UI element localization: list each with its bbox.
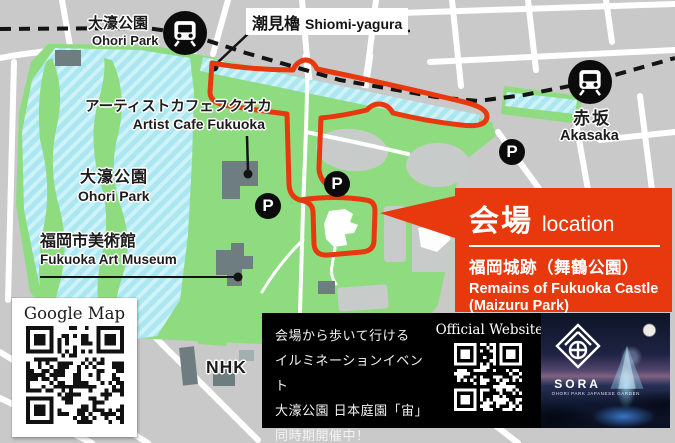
label-station-ohori-en: Ohori Park [92,34,158,48]
shiomi-yagura-ja: 潮見櫓 [252,10,300,34]
parking-icon: P [499,139,525,165]
light-beam [607,341,647,393]
label-station-akasaka-en: Akasaka [560,129,619,144]
sora-wordmark: SORA [552,377,604,391]
station-marker-ohori-koen [163,11,207,55]
venue-heading-ja: 会場 [469,196,533,240]
official-website-qr-code [436,343,541,416]
banner-line-4: 同時期開催中！ [275,424,436,443]
official-website-block: Official Website [436,313,541,428]
sora-crest-icon [555,323,601,369]
label-art-museum-ja: 福岡市美術館 [40,234,136,251]
google-map-qr-code [26,326,124,429]
parking-icon: P [324,171,350,197]
google-map-title: Google Map [12,304,137,323]
label-artist-cafe-ja: アーティストカフェフクオカ [85,100,272,115]
sora-subtitle: OHORI PARK JAPANESE GARDEN [552,391,604,396]
banner-line-1: 会場から歩いて行ける [275,324,436,349]
banner-line-2: イルミネーションイベント [275,349,436,399]
label-nhk: NHK [206,358,247,376]
label-ohori-park-en: Ohori Park [78,189,150,204]
venue-divider [469,245,660,247]
sora-logo: SORA OHORI PARK JAPANESE GARDEN [552,323,604,396]
train-icon [170,18,200,48]
shiomi-yagura-en: Shiomi-yagura [305,16,402,32]
parking-icon: P [255,193,281,219]
label-art-museum-en: Fukuoka Art Museum [40,253,177,267]
sora-event-photo: SORA OHORI PARK JAPANESE GARDEN [541,313,670,428]
venue-name-ja: 福岡城跡（舞鶴公園） [469,254,660,278]
parking-label: P [331,174,342,194]
event-banner-text: 会場から歩いて行ける イルミネーションイベント 大濠公園 日本庭園「宙」 同時期… [262,313,436,428]
banner-line-3: 大濠公園 日本庭園「宙」 [275,399,436,424]
official-website-label: Official Website [436,322,541,338]
small-green [196,330,230,346]
label-ohori-park-ja: 大濠公園 [80,170,148,187]
parking-label: P [506,142,517,162]
label-station-ohori-ja: 大濠公園 [88,16,148,32]
shiomi-yagura-callout: 潮見櫓 Shiomi-yagura [246,8,408,35]
train-icon [575,67,605,97]
station-marker-akasaka [568,60,612,104]
venue-name-en-1: Remains of Fukuoka Castle [469,281,660,298]
parking-label: P [262,196,273,216]
label-station-akasaka-ja: 赤坂 [573,110,611,128]
venue-heading-en: location [542,213,614,237]
venue-info-box: 会場 location 福岡城跡（舞鶴公園） Remains of Fukuok… [455,188,672,312]
google-map-box: Google Map [12,298,137,437]
label-artist-cafe-en: Artist Cafe Fukuoka [120,117,265,132]
event-access-map: P P P 大濠公園 Ohori Park 赤坂 Akasaka 潮見櫓 Shi… [0,0,675,443]
event-banner: 会場から歩いて行ける イルミネーションイベント 大濠公園 日本庭園「宙」 同時期… [262,313,670,428]
